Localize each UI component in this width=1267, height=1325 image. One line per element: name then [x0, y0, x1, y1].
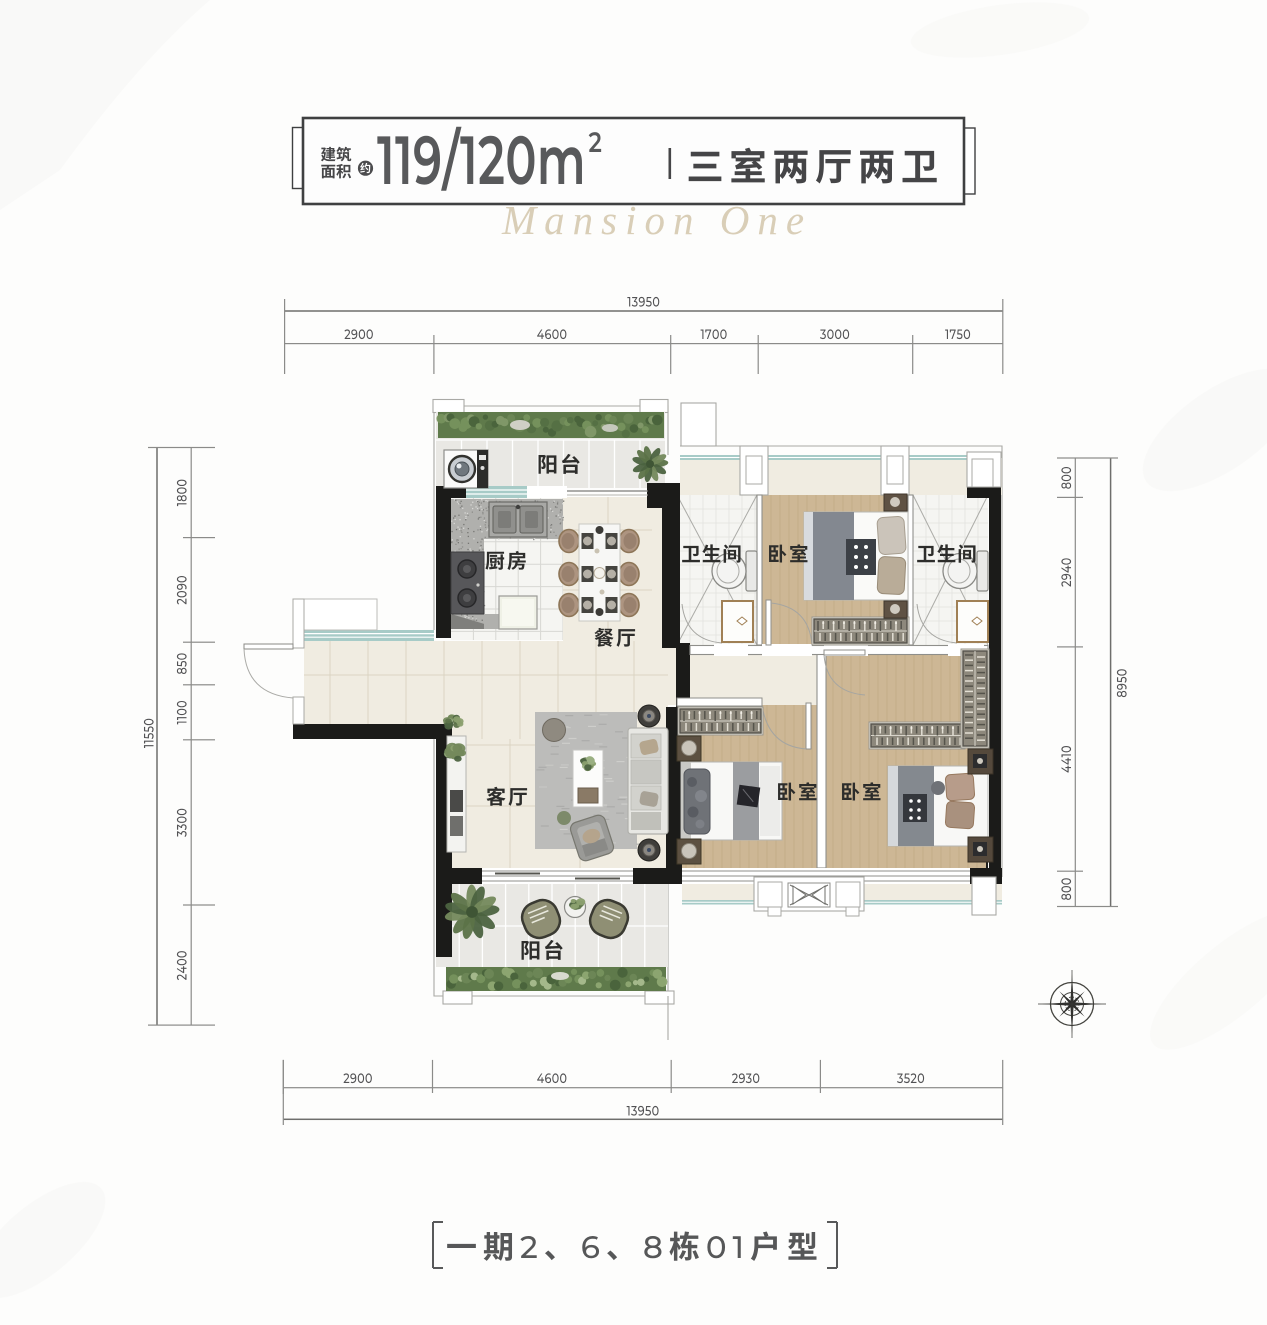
svg-text:Mansion One: Mansion One	[501, 197, 812, 243]
